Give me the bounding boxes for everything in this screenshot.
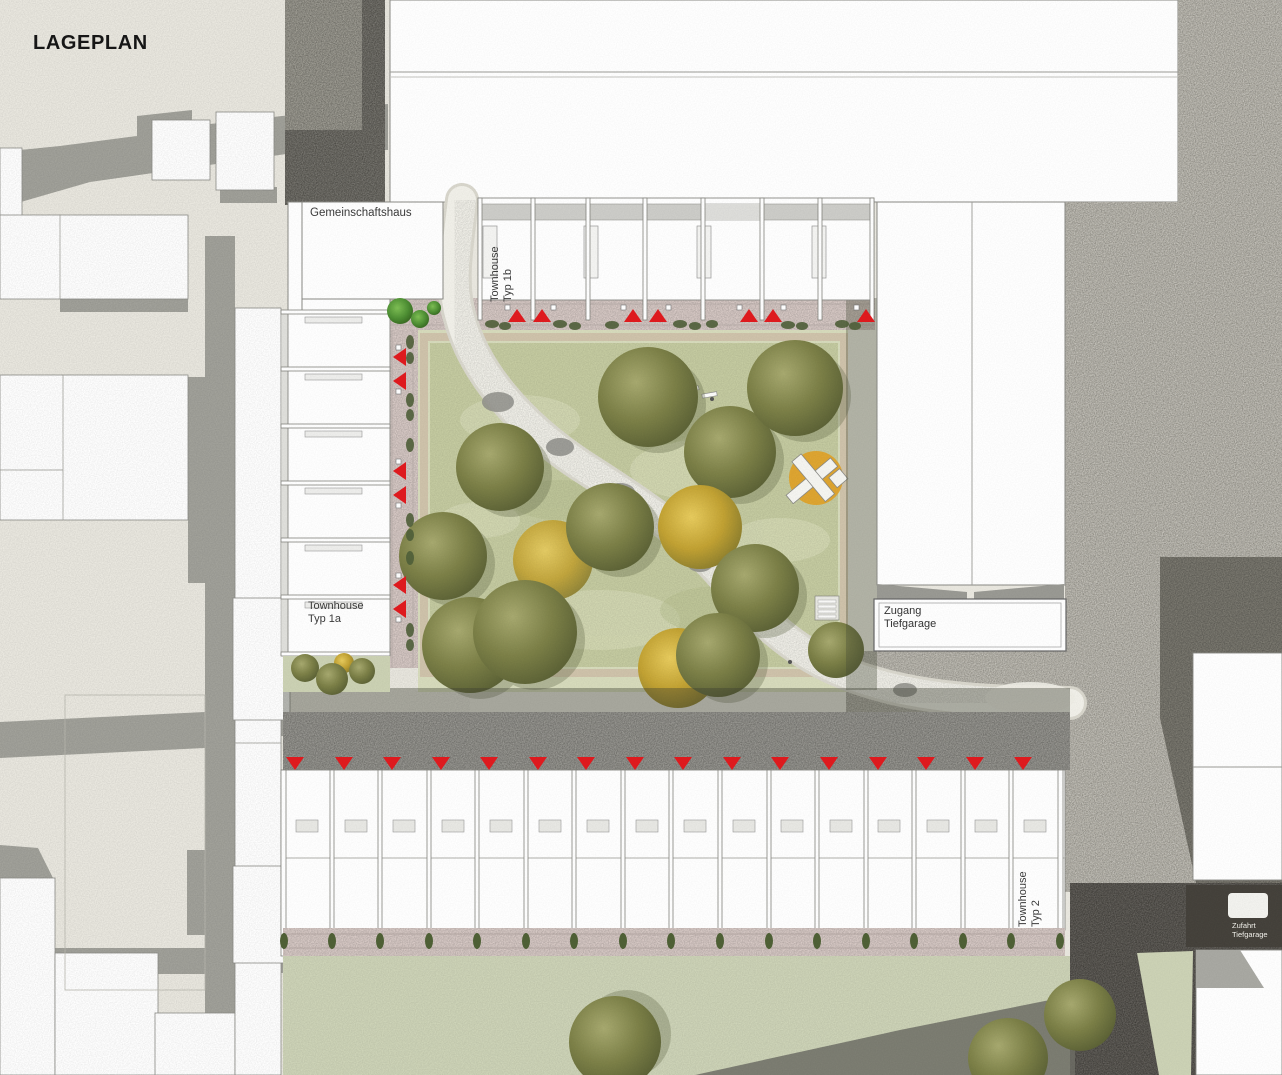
townhouse-2-label-line2: Typ 2 <box>1030 900 1042 927</box>
garage-ramp-label: ZufahrtTiefgarage <box>1232 921 1268 939</box>
townhouse-1a-label-line2: Typ 1a <box>308 613 341 625</box>
townhouse-1a-label-line1: Townhouse <box>308 600 364 612</box>
garage-access-label-line2: Tiefgarage <box>884 618 936 630</box>
townhouse-2-label-line1: Townhouse <box>1017 871 1029 927</box>
page-title: LAGEPLAN <box>33 32 148 55</box>
community-house-label: Gemeinschaftshaus <box>310 207 412 220</box>
townhouse-1a-label: TownhouseTyp 1a <box>308 600 364 626</box>
townhouse-1b-label: TownhouseTyp 1b <box>489 222 519 302</box>
paper-grain <box>0 0 1282 1075</box>
townhouse-1b-label-line2: Typ 1b <box>502 269 514 302</box>
garage-ramp-label-line1: Zufahrt <box>1232 921 1256 930</box>
townhouse-2-label: TownhouseTyp 2 <box>1017 847 1045 927</box>
garage-ramp-label-line2: Tiefgarage <box>1232 930 1268 939</box>
garage-access-label-line1: Zugang <box>884 605 921 617</box>
townhouse-1b-label-line1: Townhouse <box>489 246 501 302</box>
site-plan-drawing <box>0 0 1282 1075</box>
garage-access-label: ZugangTiefgarage <box>884 605 936 631</box>
site-plan-canvas: LAGEPLAN Gemeinschaftshaus TownhouseTyp … <box>0 0 1282 1075</box>
